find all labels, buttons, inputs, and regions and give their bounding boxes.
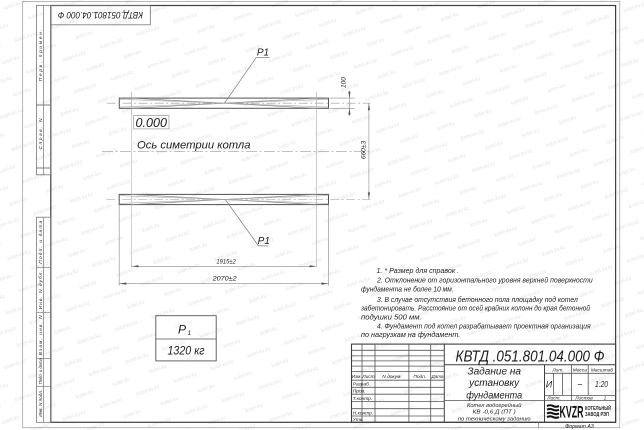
svg-text:установку: установку: [468, 378, 520, 389]
svg-text:Р: Р: [178, 322, 186, 336]
svg-text:Формат А3: Формат А3: [565, 424, 594, 430]
svg-text:фундамента не более 10 мм.: фундамента не более 10 мм.: [361, 286, 454, 294]
svg-text:Т.контр.: Т.контр.: [353, 396, 372, 402]
svg-text:по нагрузкам на фундамент.: по нагрузкам на фундамент.: [361, 331, 460, 339]
svg-text:–: –: [577, 380, 583, 389]
svg-text:Справ. N: Справ. N: [38, 118, 44, 149]
svg-text:Дата: Дата: [431, 374, 444, 380]
svg-text:КВТД.051801.04.000 Ф: КВТД.051801.04.000 Ф: [58, 10, 143, 20]
svg-text:Перв. примен.: Перв. примен.: [38, 29, 44, 81]
svg-text:КВТД .051.801.04.000 Ф: КВТД .051.801.04.000 Ф: [456, 349, 605, 366]
svg-text:Задание на: Задание на: [467, 366, 521, 377]
svg-text:Котел водогрейный: Котел водогрейный: [467, 402, 522, 409]
svg-text:2. Отклонение от горизонтальн: 2. Отклонение от горизонтального уровня …: [376, 277, 593, 285]
svg-text:фундамента: фундамента: [466, 389, 522, 401]
svg-text:Р1: Р1: [258, 236, 270, 247]
svg-text:Подп. и дата: Подп. и дата: [38, 220, 44, 263]
svg-text:Листов: Листов: [574, 396, 593, 402]
svg-text:Подп. и дата: Подп. и дата: [38, 358, 43, 384]
svg-text:1. * Размер для справок .: 1. * Размер для справок .: [377, 267, 460, 275]
svg-text:1: 1: [187, 330, 191, 337]
svg-text:4. Фундамент под котел разраб: 4. Фундамент под котел разрабатывает про…: [377, 322, 591, 330]
svg-text:Масштаб: Масштаб: [591, 368, 613, 374]
svg-text:1915±2: 1915±2: [216, 259, 236, 266]
svg-text:1: 1: [604, 396, 607, 402]
svg-text:1320 кг: 1320 кг: [168, 344, 205, 358]
svg-text:Изм.: Изм.: [352, 374, 362, 380]
svg-text:Масса: Масса: [573, 368, 588, 374]
svg-text:подушки 500 мм.: подушки 500 мм.: [361, 313, 422, 321]
svg-text:1:20: 1:20: [595, 379, 608, 389]
svg-text:забетонировать. Расстояние от: забетонировать. Расстояние от осей крайн…: [360, 304, 590, 312]
svg-text:Лист: Лист: [361, 374, 374, 380]
svg-text:Лит.: Лит.: [551, 368, 563, 374]
svg-text:Пров.: Пров.: [353, 389, 366, 395]
svg-text:Утв.: Утв.: [353, 417, 364, 423]
svg-text:0.000: 0.000: [136, 115, 168, 130]
svg-text:по техническому заданию: по техническому заданию: [458, 417, 531, 423]
svg-text:Н.контр.: Н.контр.: [353, 410, 373, 416]
svg-text:КВ -0,6 Д (ПТ ): КВ -0,6 Д (ПТ ): [473, 409, 516, 415]
svg-text:KVZR: KVZR: [560, 404, 584, 422]
svg-text:2070±2: 2070±2: [212, 276, 237, 283]
svg-text:100: 100: [341, 77, 348, 88]
svg-text:Лист.: Лист.: [546, 396, 561, 402]
svg-text:Взам. инв. N: Взам. инв. N: [38, 315, 44, 355]
svg-text:Р1: Р1: [257, 47, 269, 58]
svg-text:КОТЕЛЬНЫЙ: КОТЕЛЬНЫЙ: [585, 404, 611, 412]
svg-text:Инв. N дубл.: Инв. N дубл.: [38, 270, 44, 309]
svg-text:Инв. N подл.: Инв. N подл.: [38, 390, 44, 417]
svg-text:Ось симетрии котла: Ось симетрии котла: [137, 139, 251, 151]
svg-text:660±3: 660±3: [360, 141, 367, 160]
svg-text:ЗАВОД РЭП: ЗАВОД РЭП: [585, 412, 609, 418]
svg-text:Подп.: Подп.: [413, 374, 426, 380]
svg-text:3. В случае отсутствия бетонн: 3. В случае отсутствия бетонного пола пл…: [377, 296, 578, 304]
svg-text:Разраб.: Разраб.: [353, 382, 370, 388]
svg-text:И: И: [546, 379, 553, 389]
svg-text:N докум.: N докум.: [382, 374, 401, 380]
